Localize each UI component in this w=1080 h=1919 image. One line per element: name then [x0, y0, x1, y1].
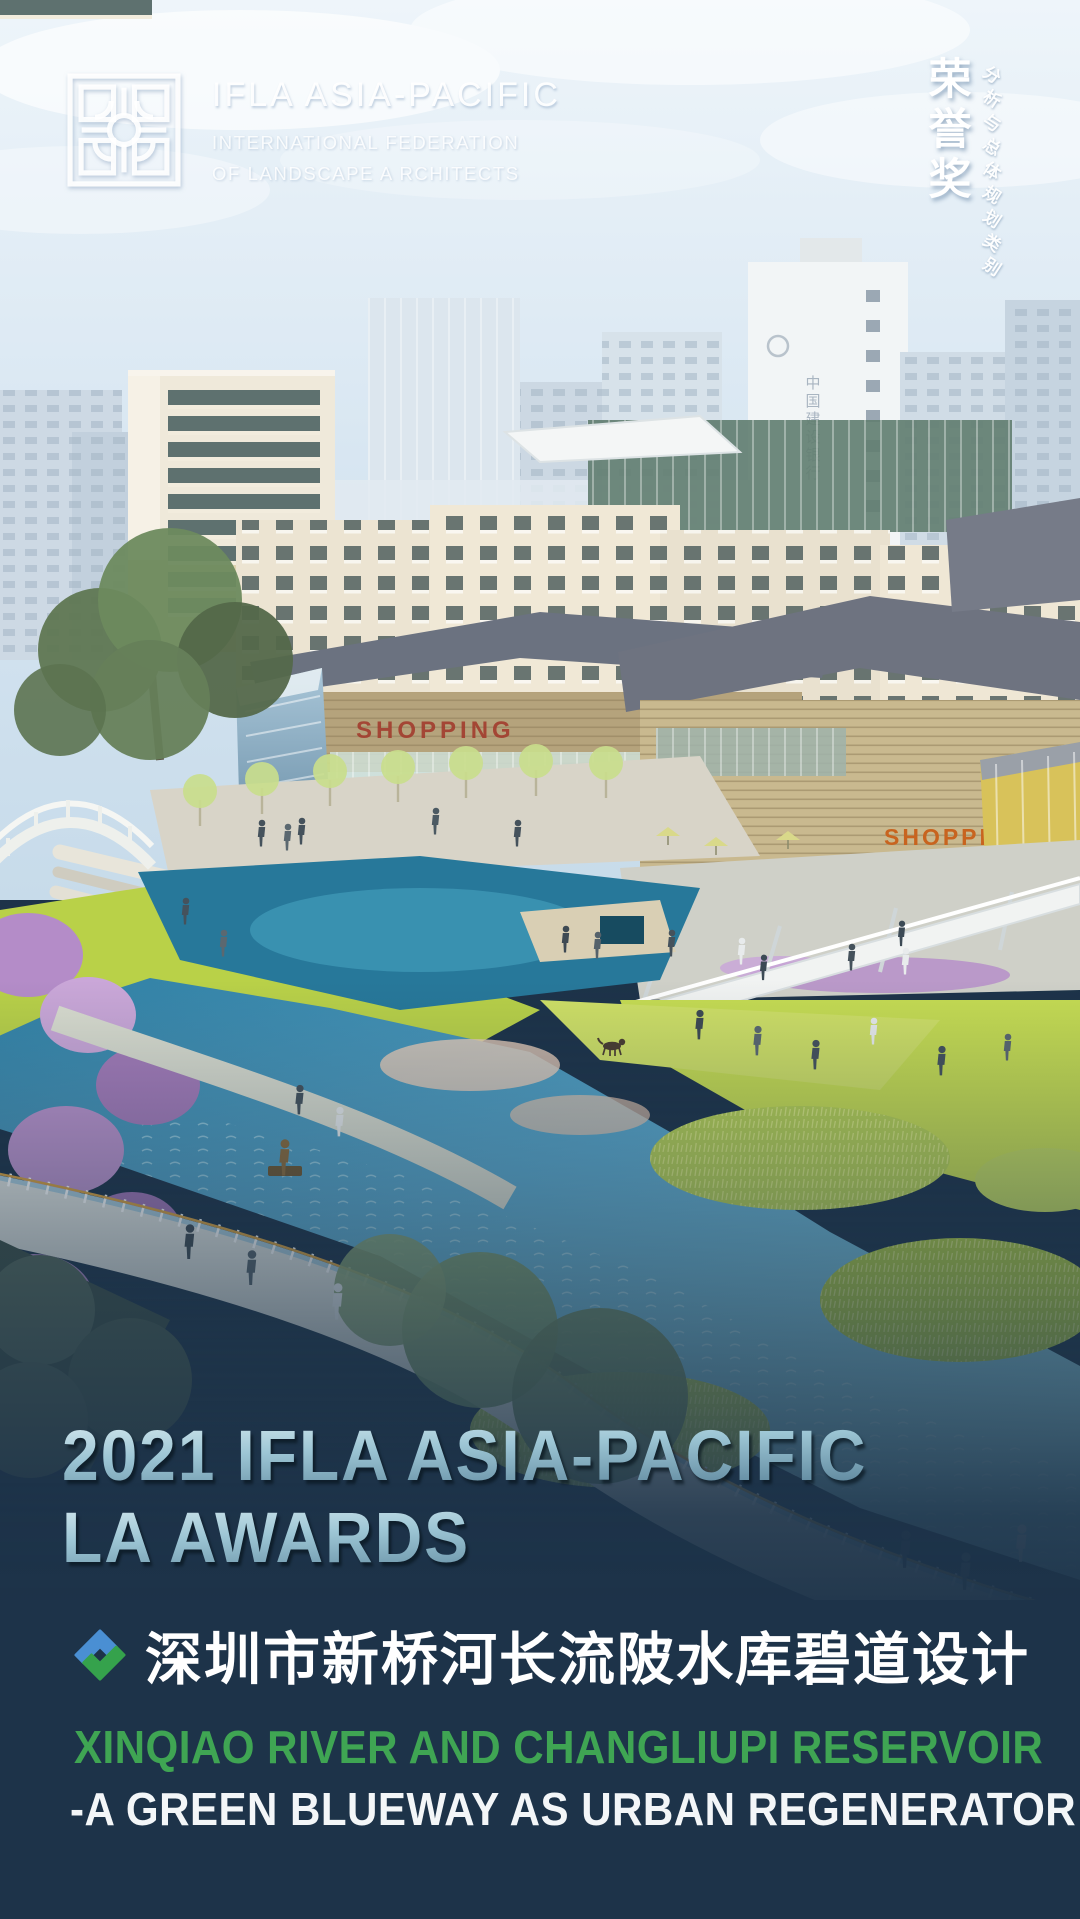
project-diamond-icon	[70, 1625, 130, 1685]
project-subtitle-en-line2: -A GREEN BLUEWAY AS URBAN REGENERATOR	[70, 1782, 1076, 1836]
org-text: IFLA ASIA-PACIFIC INTERNATIONAL FEDERATI…	[212, 70, 561, 190]
award-name: 荣誉奖	[924, 56, 967, 277]
event-title-line2: LA AWARDS	[62, 1498, 992, 1579]
project-title-zh: 深圳市新桥河长流陂水库碧道设计	[145, 1614, 1030, 1696]
award-badge: 荣誉奖 分析与总体规划类别	[924, 56, 1003, 277]
org-header: IFLA ASIA-PACIFIC INTERNATIONAL FEDERATI…	[66, 70, 561, 190]
ifla-apr-logo-icon	[66, 70, 182, 190]
project-subtitle-en-line1: XINQIAO RIVER AND CHANGLIUPI RESERVOIR	[74, 1720, 1043, 1774]
mall-sign-right: SHOPPI	[884, 824, 989, 850]
award-poster: 中国建设银行	[0, 0, 1080, 1919]
event-title-line1: 2021 IFLA ASIA-PACIFIC	[62, 1416, 992, 1497]
mall-sign-center: SHOPPING	[356, 717, 515, 744]
org-subtitle-line1: INTERNATIONAL FEDERATION	[212, 127, 561, 158]
landscape-rendering: 中国建设银行	[0, 0, 1080, 1650]
org-subtitle: INTERNATIONAL FEDERATION OF LANDSCAPE A …	[212, 127, 561, 190]
org-subtitle-line2: OF LANDSCAPE A RCHITECTS	[212, 158, 561, 189]
award-category: 分析与总体规划类别	[983, 56, 1003, 277]
org-title: IFLA ASIA-PACIFIC	[212, 76, 561, 115]
project-title-row: 深圳市新桥河长流陂水库碧道设计	[70, 1614, 1030, 1696]
